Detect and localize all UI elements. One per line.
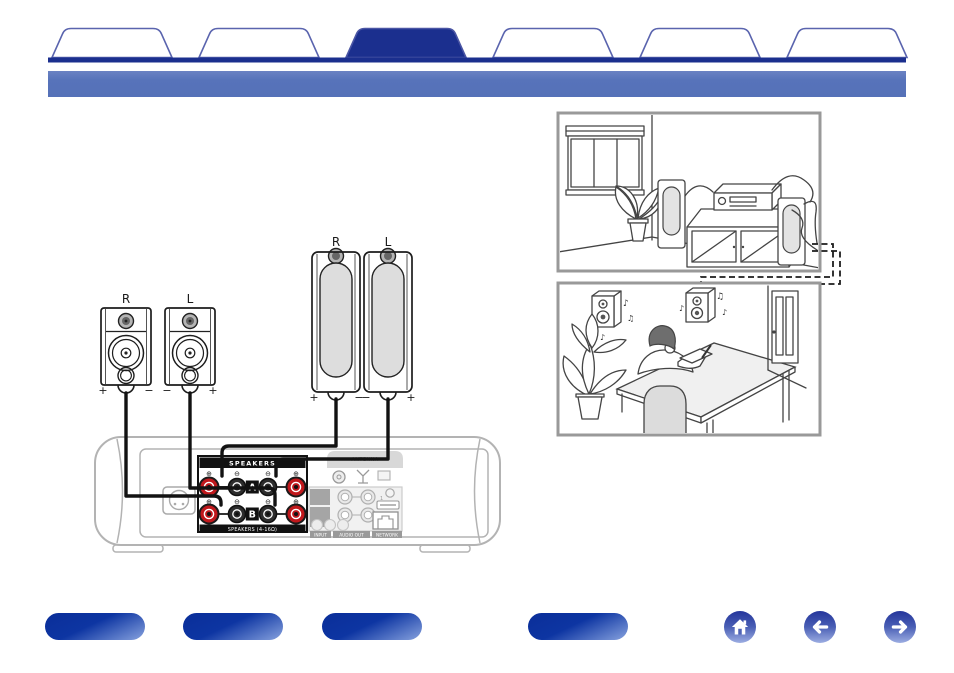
music-note-icon: ♪ [722, 308, 727, 317]
polarity-sign: + [309, 391, 318, 404]
speaker-row-b-label: B [249, 510, 256, 521]
fm-antenna-icon [357, 470, 369, 483]
svg-text:R: R [332, 235, 340, 249]
footer-link-button-3[interactable] [322, 613, 422, 640]
home-icon [729, 616, 751, 638]
svg-text:L: L [187, 292, 194, 306]
audio-out-jacks [312, 520, 349, 531]
usb-port [377, 501, 399, 509]
svg-text:⊖: ⊖ [265, 470, 271, 478]
amp-foot-left [113, 545, 163, 552]
back-button[interactable] [804, 611, 836, 643]
living-room-illustration [558, 113, 820, 271]
network-label: NETWORK [376, 532, 398, 538]
music-note-icon: ♪ [623, 299, 629, 309]
footer-link-button-4[interactable] [528, 613, 628, 640]
svg-text:R: R [122, 292, 130, 306]
tower-speaker-right: R + − [309, 235, 363, 404]
input-label: INPUT [314, 532, 327, 538]
svg-text:L: L [385, 235, 392, 249]
forward-button[interactable] [884, 611, 916, 643]
audio-out-label: AUDIO OUT [339, 532, 364, 538]
polarity-sign: + [406, 391, 415, 404]
polarity-sign: − [162, 384, 171, 397]
ethernet-port [373, 512, 398, 529]
music-note-icon: ♫ [716, 292, 724, 302]
speakers-block-title: SPEAKERS [229, 460, 276, 468]
bookshelf-speaker-left: L − + [162, 292, 217, 397]
music-note-icon: ♫ [627, 314, 634, 323]
amp-foot-right [420, 545, 470, 552]
footer-link-button-2[interactable] [183, 613, 283, 640]
tower-speaker-in-room-left [658, 180, 685, 248]
io-label-strips: INPUT AUDIO OUT NETWORK [310, 531, 402, 538]
polarity-sign: − [144, 384, 153, 397]
music-note-icon: ♪ [600, 333, 605, 342]
rear-connector-panel: 1 2 [309, 487, 402, 538]
chair [644, 386, 686, 433]
speaker-connection-diagram: ANTENNA 1 [0, 0, 954, 673]
polarity-sign: − [361, 391, 370, 404]
back-arrow-icon [809, 616, 831, 638]
study-room-illustration: ♪ ♫ ♪ ♫ ♪ ♪ [558, 283, 820, 448]
speakers-impedance-label: SPEAKERS (4-16Ω) [228, 527, 277, 533]
manual-page: ANTENNA 1 [0, 0, 954, 673]
home-button[interactable] [724, 611, 756, 643]
gnd-screw [386, 489, 394, 497]
polarity-sign: + [208, 384, 217, 397]
polarity-sign: + [98, 384, 107, 397]
music-note-icon: ♪ [679, 304, 684, 313]
bookshelf-speaker-right: R + − [98, 292, 153, 397]
audio-unit-on-cabinet [714, 184, 781, 210]
forward-arrow-icon [889, 616, 911, 638]
wall-speaker-right [686, 288, 715, 322]
footer-link-button-1[interactable] [45, 613, 145, 640]
tower-speaker-left: L − + [361, 235, 415, 404]
window [566, 126, 644, 195]
svg-text:⊖: ⊖ [234, 470, 240, 478]
antenna-section: ANTENNA [327, 451, 403, 483]
